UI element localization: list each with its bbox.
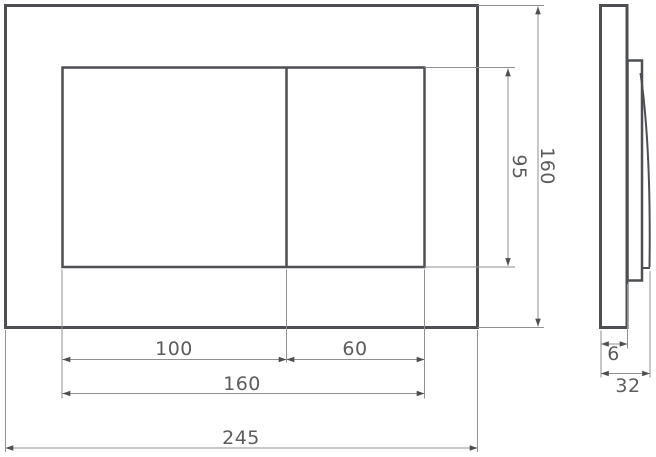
front-view: [6, 6, 478, 328]
side-plate-profile: [601, 6, 628, 328]
dim-label-plate-height: 160: [536, 147, 558, 185]
button-area-outline: [63, 68, 425, 268]
dim-label-right-button-width: 60: [342, 338, 367, 360]
dim-label-plate-thickness: 6: [607, 343, 620, 365]
dim-label-left-button-width: 100: [155, 338, 193, 360]
dimension-lines: [6, 7, 651, 449]
dim-label-button-area-height: 95: [508, 154, 530, 179]
dimension-labels: 100 60 160 245 95 160 6 32: [155, 147, 640, 449]
side-button-profile: [628, 61, 643, 281]
technical-drawing-canvas: 100 60 160 245 95 160 6 32: [0, 0, 656, 457]
dim-label-plate-width: 245: [222, 427, 260, 449]
extension-lines: [6, 6, 651, 453]
dim-label-button-area-width: 160: [223, 373, 261, 395]
flush-plate-technical-drawing: 100 60 160 245 95 160 6 32: [0, 0, 656, 457]
dim-label-overall-depth: 32: [615, 375, 640, 397]
plate-outline: [6, 6, 478, 328]
side-view: [601, 6, 651, 328]
